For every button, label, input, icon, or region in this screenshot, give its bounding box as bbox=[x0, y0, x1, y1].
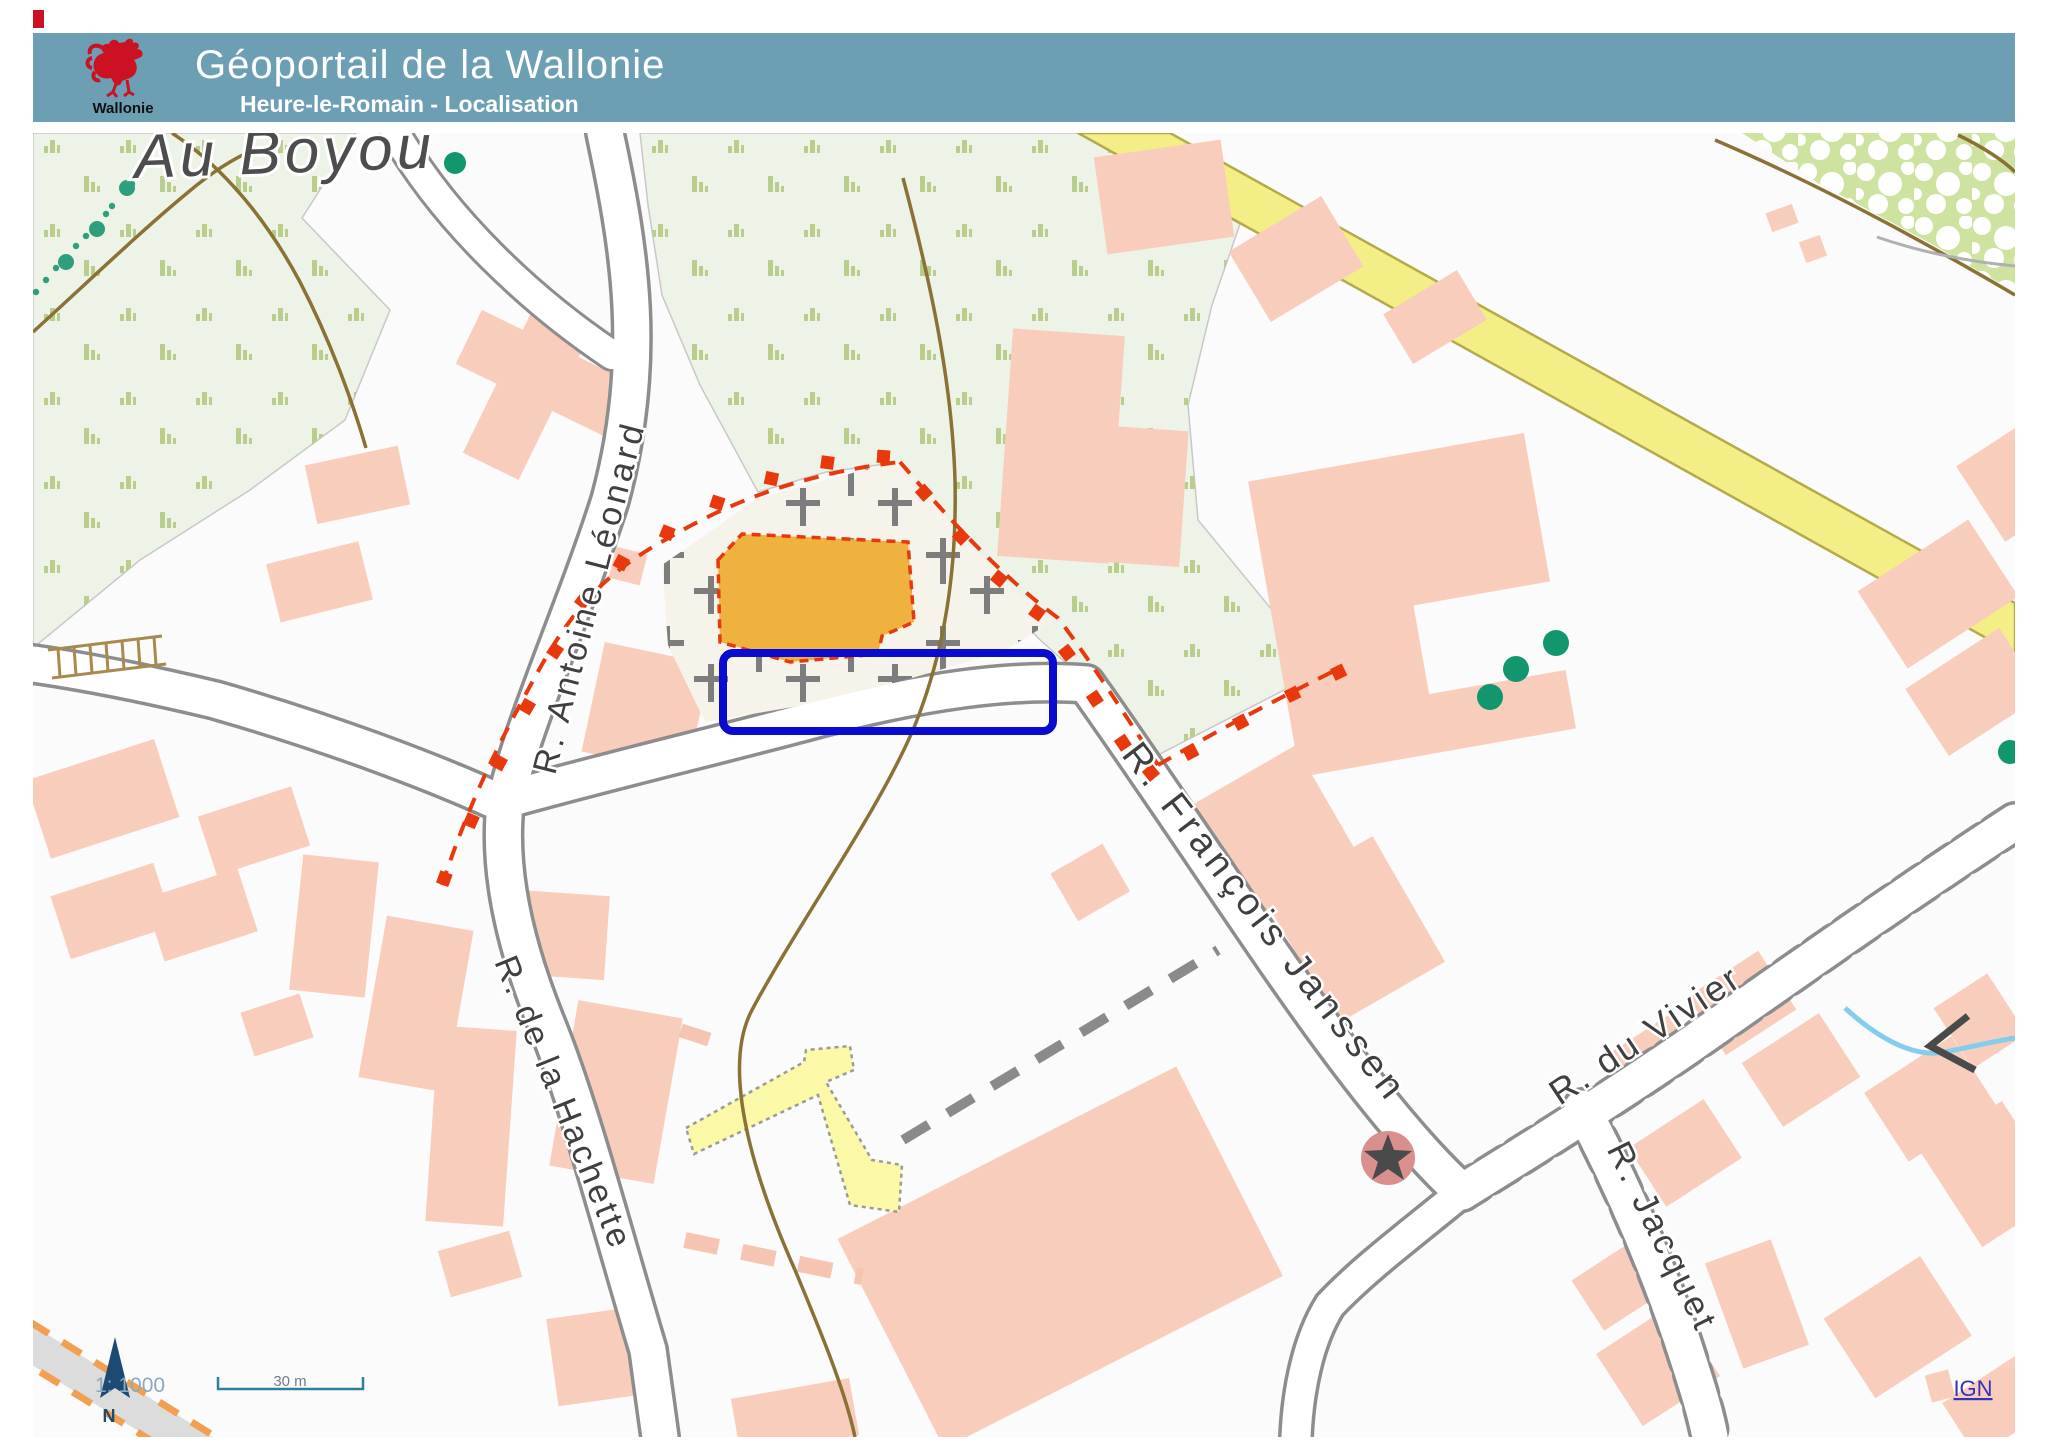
map-svg[interactable]: Au Boyou R. Antoine Léonard R. de la Hac… bbox=[33, 133, 2015, 1437]
star-marker bbox=[1361, 1131, 1415, 1185]
scale-ratio: 1: 1000 bbox=[95, 1374, 165, 1397]
scale-bar-label: 30 m bbox=[273, 1373, 306, 1390]
wallonie-logo-text: Wallonie bbox=[53, 100, 193, 117]
north-label: N bbox=[103, 1406, 116, 1426]
map-subtitle: Heure-le-Romain - Localisation bbox=[240, 91, 579, 118]
geoportail-page: Wallonie Géoportail de la Wallonie Heure… bbox=[0, 0, 2048, 1449]
map-canvas[interactable]: Au Boyou R. Antoine Léonard R. de la Hac… bbox=[33, 133, 2015, 1437]
wallonie-rooster-icon bbox=[53, 34, 193, 104]
attribution-link[interactable]: IGN bbox=[1953, 1376, 1992, 1401]
tree-dot bbox=[444, 152, 466, 174]
wallonie-logo: Wallonie bbox=[53, 34, 193, 122]
logo-fragment bbox=[33, 10, 44, 28]
app-title: Géoportail de la Wallonie bbox=[195, 43, 665, 88]
app-header: Wallonie Géoportail de la Wallonie Heure… bbox=[33, 33, 2015, 122]
